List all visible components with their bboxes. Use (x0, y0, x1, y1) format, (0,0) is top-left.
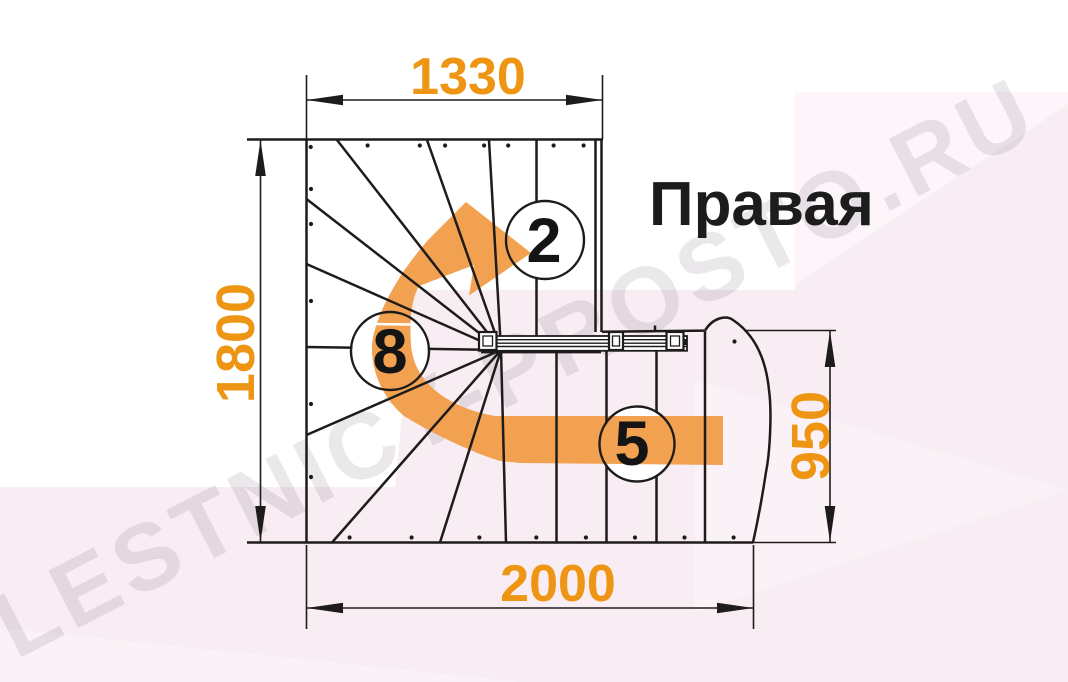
svg-text:5: 5 (614, 409, 649, 479)
svg-text:2: 2 (526, 206, 561, 276)
svg-text:1800: 1800 (206, 283, 266, 403)
svg-text:Правая: Правая (649, 170, 874, 239)
svg-text:8: 8 (372, 317, 407, 387)
svg-text:950: 950 (781, 391, 841, 481)
svg-text:2000: 2000 (500, 555, 616, 613)
svg-text:1330: 1330 (410, 48, 526, 106)
